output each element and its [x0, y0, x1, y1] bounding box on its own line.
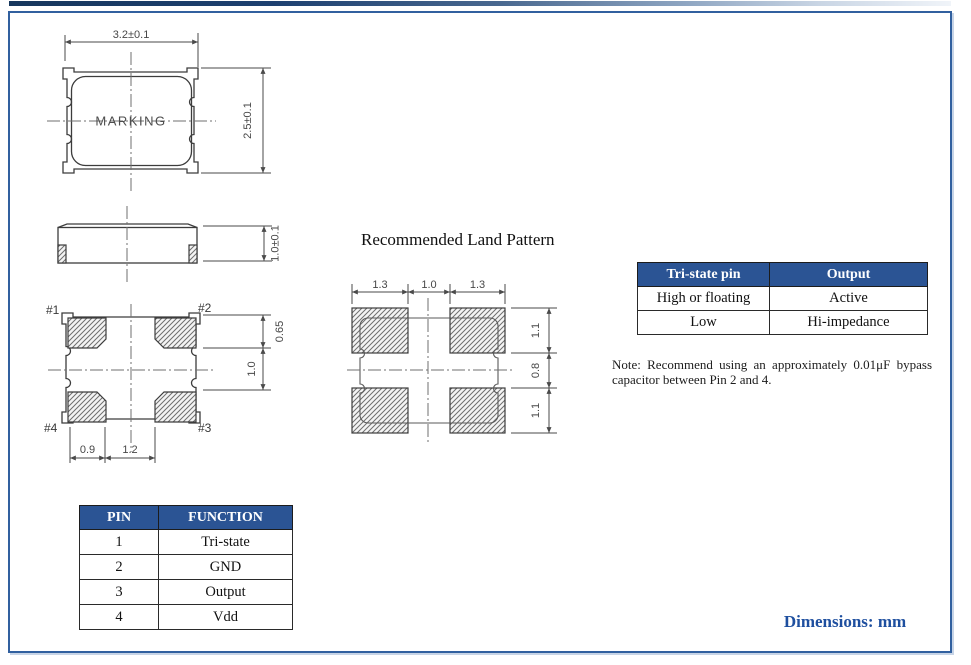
tristate-header-output: Output: [770, 263, 928, 287]
land-pattern-title: Recommended Land Pattern: [361, 230, 555, 250]
pin-header: PIN: [80, 506, 159, 530]
datasheet-page: MARKING 3.2±0.1 2.5±0.1 1.0±0.1: [0, 0, 971, 665]
table-row: Low Hi-impedance: [638, 311, 928, 335]
table-row: 4 Vdd: [80, 605, 293, 630]
bypass-capacitor-note: Note: Recommend using an approximately 0…: [612, 358, 932, 387]
table-row: 1 Tri-state: [80, 530, 293, 555]
tristate-cell: High or floating: [638, 287, 770, 311]
pin-header-row: PIN FUNCTION: [80, 506, 293, 530]
function-header: FUNCTION: [159, 506, 293, 530]
pin-number-cell: 3: [80, 580, 159, 605]
table-row: High or floating Active: [638, 287, 928, 311]
pin-number-cell: 2: [80, 555, 159, 580]
pin-number-cell: 4: [80, 605, 159, 630]
tristate-cell: Active: [770, 287, 928, 311]
pin-number-cell: 1: [80, 530, 159, 555]
pin-function-cell: Tri-state: [159, 530, 293, 555]
tristate-header-pin: Tri-state pin: [638, 263, 770, 287]
tristate-cell: Hi-impedance: [770, 311, 928, 335]
pin-function-table: PIN FUNCTION 1 Tri-state 2 GND 3 Output …: [79, 505, 293, 630]
page-top-accent-bar: [9, 1, 951, 6]
tristate-header-row: Tri-state pin Output: [638, 263, 928, 287]
table-row: 2 GND: [80, 555, 293, 580]
dimensions-unit-note: Dimensions: mm: [765, 612, 925, 632]
tristate-table: Tri-state pin Output High or floating Ac…: [637, 262, 928, 335]
pin-function-cell: GND: [159, 555, 293, 580]
table-row: 3 Output: [80, 580, 293, 605]
pin-function-cell: Output: [159, 580, 293, 605]
tristate-cell: Low: [638, 311, 770, 335]
pin-function-cell: Vdd: [159, 605, 293, 630]
